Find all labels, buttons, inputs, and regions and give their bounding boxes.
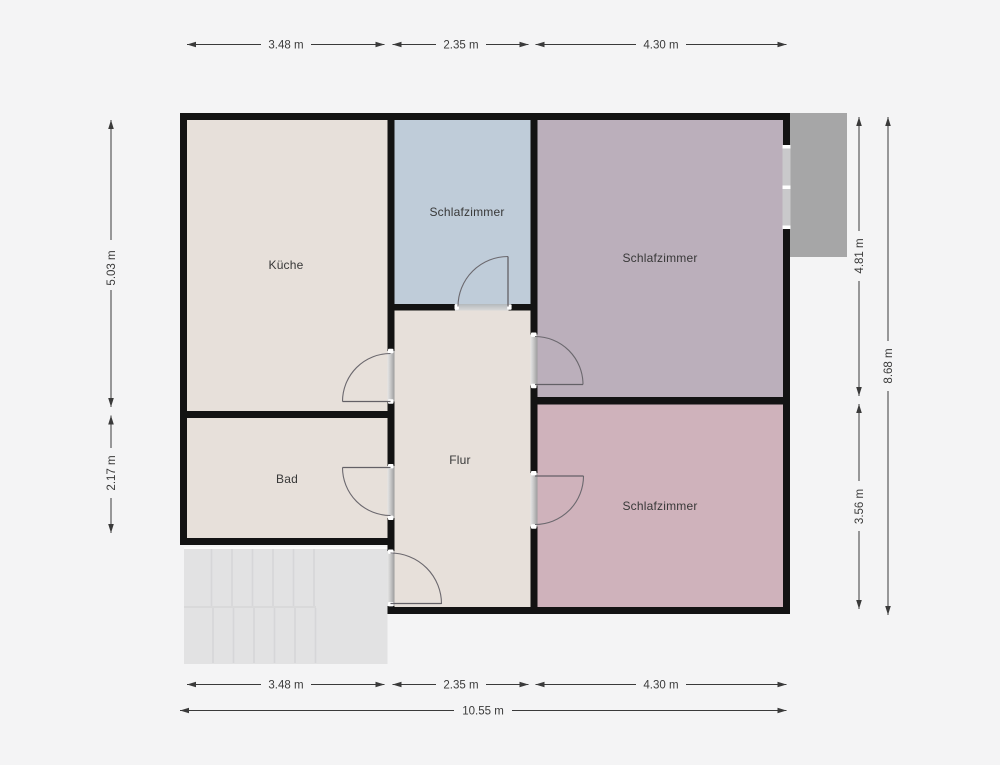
svg-text:4.30 m: 4.30 m <box>643 40 678 52</box>
svg-text:5.03 m: 5.03 m <box>106 250 118 285</box>
svg-text:2.35 m: 2.35 m <box>443 680 478 692</box>
svg-text:Schlafzimmer: Schlafzimmer <box>622 251 697 265</box>
svg-text:Flur: Flur <box>449 453 470 467</box>
svg-text:8.68 m: 8.68 m <box>883 348 895 383</box>
svg-text:2.35 m: 2.35 m <box>443 40 478 52</box>
svg-text:Schlafzimmer: Schlafzimmer <box>429 205 504 219</box>
svg-text:2.17 m: 2.17 m <box>106 455 118 490</box>
svg-text:10.55 m: 10.55 m <box>462 706 504 718</box>
svg-text:Schlafzimmer: Schlafzimmer <box>622 499 697 513</box>
svg-text:3.48 m: 3.48 m <box>268 40 303 52</box>
svg-text:3.48 m: 3.48 m <box>268 680 303 692</box>
svg-text:Bad: Bad <box>276 472 298 486</box>
svg-text:4.30 m: 4.30 m <box>643 680 678 692</box>
svg-text:4.81 m: 4.81 m <box>854 238 866 273</box>
svg-text:Küche: Küche <box>268 258 303 272</box>
svg-text:3.56 m: 3.56 m <box>854 489 866 524</box>
